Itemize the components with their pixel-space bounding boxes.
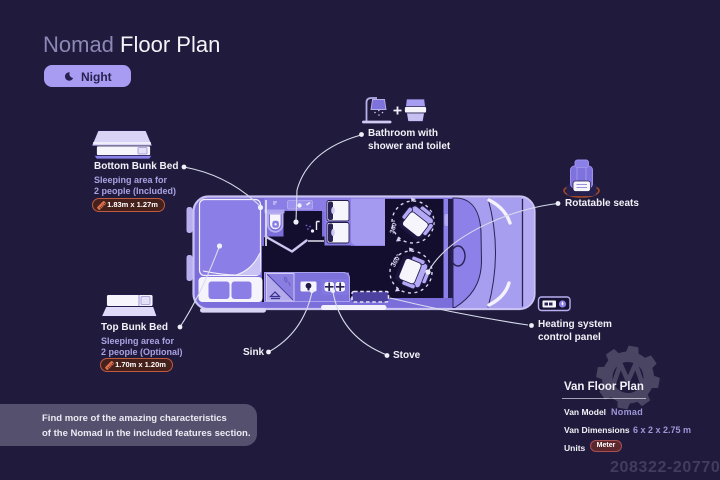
svg-text:360°: 360° [389,252,403,268]
svg-text:360°: 360° [388,219,400,235]
